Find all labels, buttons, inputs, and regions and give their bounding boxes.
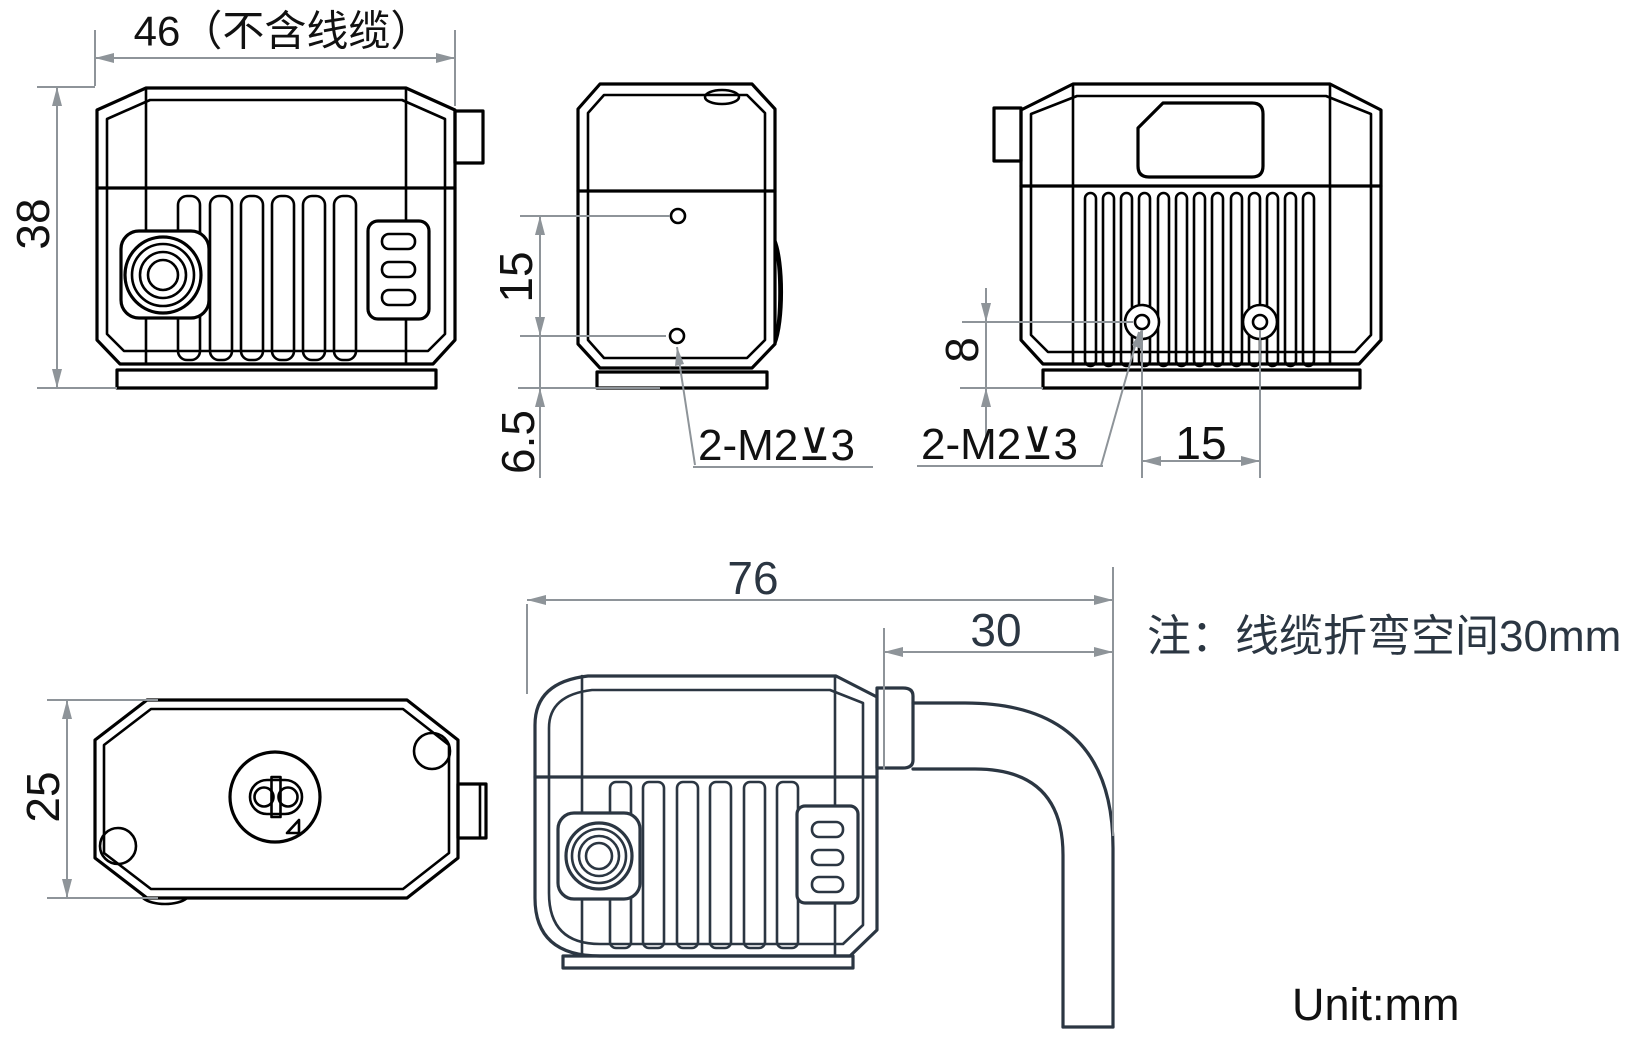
cable-outer-edge: [913, 703, 1113, 1027]
unit-label: Unit:mm: [1292, 979, 1460, 1030]
top-body-outline: [95, 700, 458, 898]
arrow-down-icon: [535, 317, 545, 336]
rear-view-dimensions: 8 15 2-M2⊻3: [917, 288, 1260, 478]
arrow-up-icon: [535, 216, 545, 235]
arrow-right-icon: [1094, 595, 1113, 605]
arrow-right-icon: [1094, 647, 1113, 657]
top-connector-slot: [250, 780, 302, 814]
top-orientation-marker: [287, 820, 299, 833]
cable-view-dimensions: 76 30: [527, 552, 1113, 836]
side-top-hole: [705, 90, 739, 104]
side-thread-callout: 2-M2⊻3: [698, 421, 855, 470]
top-center-boss: [230, 752, 320, 842]
top-view: [95, 700, 486, 904]
arrow-left-icon: [95, 53, 114, 63]
overall-length-label: 76: [727, 552, 778, 604]
top-screw-hole-right: [414, 733, 450, 769]
cable-side-view: [535, 676, 1113, 1027]
cable-gland: [877, 688, 913, 768]
arrow-down-icon: [52, 369, 62, 388]
side-mount-hole-top: [671, 209, 685, 223]
top-body-inner-contour: [104, 709, 449, 889]
arrow-up-icon: [535, 388, 545, 407]
side-body-outline: [578, 84, 775, 368]
side-view-dimensions: 15 6.5 2-M2⊻3: [490, 216, 873, 478]
cable-bend-note: 注：线缆折弯空间30mm: [1147, 612, 1621, 661]
side-hole-spacing-label: 15: [490, 251, 542, 302]
rear-label-window: [1138, 103, 1263, 177]
dimension-drawing: 46（不含线缆） 38 15 6.5 2-M2⊻3: [0, 0, 1630, 1053]
top-screw-hole-left: [100, 828, 136, 864]
rear-connector-stub: [994, 108, 1021, 161]
rear-body-inner-contour: [1031, 96, 1371, 352]
cable-view-lens-pad: [558, 813, 640, 899]
rear-view: [994, 84, 1381, 388]
front-bottom-plate: [117, 370, 436, 388]
arrow-left-icon: [527, 595, 546, 605]
cable-view-bottom-plate: [563, 956, 853, 968]
dimension-drawing-page: 46（不含线缆） 38 15 6.5 2-M2⊻3: [0, 0, 1630, 1053]
arrow-left-icon: [1142, 456, 1161, 466]
front-view: [97, 88, 483, 388]
front-height-label: 38: [7, 198, 59, 249]
front-width-label: 46（不含线缆）: [134, 8, 433, 55]
top-connector-stub: [458, 784, 486, 838]
bend-space-label: 30: [970, 604, 1021, 656]
rear-hole-spacing-label: 15: [1175, 417, 1226, 469]
cable-inner-edge: [913, 769, 1063, 1027]
arrow-down-icon: [981, 303, 991, 322]
top-view-dimensions: 25: [17, 700, 158, 898]
leader-arrow-icon: [675, 347, 684, 366]
arrow-right-icon: [1241, 456, 1260, 466]
rear-bottom-plate: [1043, 370, 1360, 388]
arrow-up-icon: [981, 388, 991, 407]
top-depth-label: 25: [17, 771, 69, 822]
arrow-down-icon: [62, 879, 72, 898]
side-body-inner-contour: [588, 95, 765, 358]
side-mount-hole-bottom: [670, 329, 684, 343]
rear-heatsink-fins: [1085, 193, 1314, 366]
side-view: [578, 84, 782, 388]
front-connector-stub: [455, 111, 483, 163]
side-bottom-offset-label: 6.5: [492, 410, 544, 474]
cable-view-indicator-panel: [797, 806, 858, 903]
arrow-up-icon: [52, 87, 62, 106]
rear-thread-callout: 2-M2⊻3: [921, 420, 1078, 469]
rear-hole-height-label: 8: [936, 337, 988, 363]
arrow-right-icon: [436, 53, 455, 63]
arrow-up-icon: [62, 700, 72, 719]
arrow-left-icon: [884, 647, 903, 657]
